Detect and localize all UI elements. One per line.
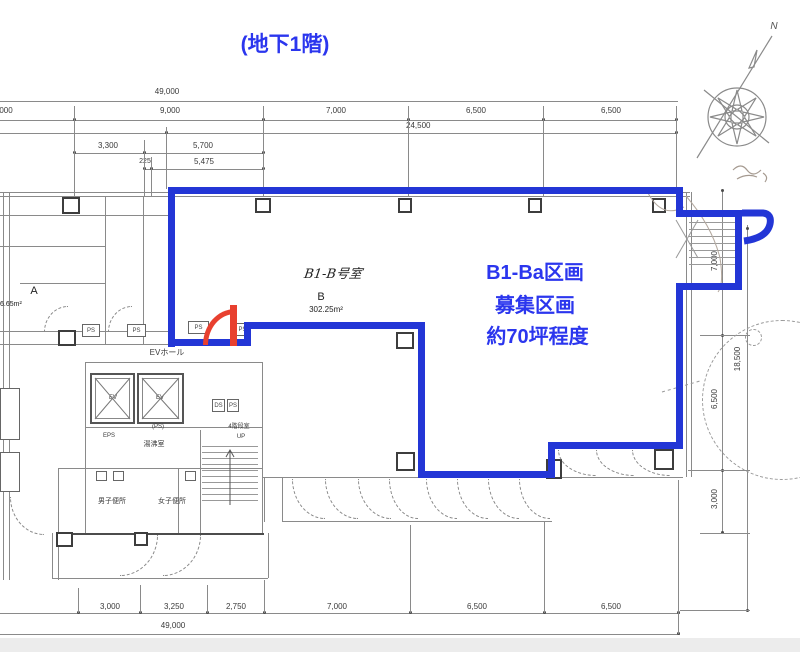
louver-arc bbox=[358, 479, 391, 519]
stair-tread bbox=[202, 470, 258, 471]
fixture bbox=[185, 471, 196, 481]
stair-tread bbox=[202, 446, 258, 447]
ps-paren-label: (PS) bbox=[146, 424, 170, 430]
callout-line1: B1-Ba区画 bbox=[455, 263, 615, 283]
callout-line2: 募集区画 bbox=[455, 296, 615, 316]
dim-label: 7,000 bbox=[711, 241, 719, 281]
ext-line bbox=[263, 106, 264, 196]
column bbox=[255, 198, 271, 213]
door-swing-arc bbox=[10, 497, 44, 535]
section-a-letter: A bbox=[26, 286, 42, 297]
ps-box: PS bbox=[82, 324, 100, 337]
dim-line bbox=[0, 613, 680, 614]
ext-line bbox=[207, 585, 208, 613]
stair-tread bbox=[202, 488, 258, 489]
wall bbox=[0, 196, 690, 197]
ext-line bbox=[166, 127, 167, 189]
dim-label: 7,000 bbox=[312, 107, 360, 115]
ev-hall-label: EVホール bbox=[138, 349, 196, 357]
stair-tread bbox=[202, 464, 258, 465]
boundary-segment bbox=[247, 322, 425, 329]
wall bbox=[105, 196, 106, 345]
dim-label: 49,000 bbox=[146, 622, 200, 630]
wall bbox=[143, 196, 144, 345]
dim-label: 24,500 bbox=[406, 122, 450, 130]
page-title: (地下1階) bbox=[210, 34, 360, 55]
dim-line bbox=[0, 101, 678, 102]
column bbox=[396, 452, 415, 471]
ps-box: PS bbox=[227, 399, 239, 412]
ps-box-label: PS bbox=[229, 403, 237, 409]
wall bbox=[9, 192, 10, 580]
wall bbox=[200, 430, 201, 533]
ext-line bbox=[74, 106, 75, 196]
louver-arc bbox=[325, 479, 358, 519]
column bbox=[56, 532, 73, 547]
fixture bbox=[96, 471, 107, 481]
stair-tread bbox=[689, 243, 735, 244]
ext-line bbox=[688, 470, 750, 471]
louver-arc bbox=[292, 479, 325, 519]
section-a-area: 6.65m² bbox=[0, 301, 40, 308]
wall bbox=[58, 468, 59, 580]
eps-label: EPS bbox=[96, 433, 122, 439]
ext-line bbox=[408, 106, 409, 196]
womens-wc-label: 女子便所 bbox=[146, 498, 198, 505]
ext-line bbox=[544, 522, 545, 613]
dim-label: 2,750 bbox=[212, 603, 260, 611]
boundary-segment bbox=[168, 187, 175, 347]
louver-arc bbox=[389, 479, 418, 519]
column bbox=[652, 198, 666, 213]
boundary-segment bbox=[551, 442, 683, 449]
fixture bbox=[113, 471, 124, 481]
ext-line bbox=[151, 157, 152, 196]
door-swing-arc bbox=[44, 306, 68, 332]
wall bbox=[58, 468, 262, 469]
ps-box-label: PS bbox=[87, 328, 95, 334]
column bbox=[62, 197, 80, 214]
ext-line bbox=[700, 533, 750, 534]
mens-wc-label: 男子便所 bbox=[86, 498, 138, 505]
elevator-label: EV bbox=[103, 395, 123, 401]
wall bbox=[85, 362, 262, 363]
kitchenette-label: 湯沸室 bbox=[133, 441, 175, 448]
door-swing-arc bbox=[120, 535, 158, 576]
wall bbox=[264, 477, 265, 522]
ds-box-label: DS bbox=[214, 403, 222, 409]
column bbox=[396, 332, 414, 349]
room-area: 302.25m² bbox=[300, 306, 352, 314]
boundary-segment bbox=[676, 210, 742, 217]
louver-arc bbox=[457, 479, 488, 519]
ext-line bbox=[78, 588, 79, 613]
compass-north-label: N bbox=[766, 22, 782, 32]
wall bbox=[268, 533, 269, 578]
wall bbox=[691, 192, 692, 477]
boundary-segment bbox=[421, 471, 555, 478]
door-swing-arc bbox=[163, 535, 201, 576]
stair-room-label: 4階段室 bbox=[216, 424, 262, 430]
column bbox=[58, 330, 76, 346]
stair-tread bbox=[689, 229, 735, 230]
louver-arc bbox=[558, 450, 596, 476]
wall bbox=[283, 521, 552, 522]
dim-label: 9,000 bbox=[146, 107, 194, 115]
dim-label: 3,250 bbox=[150, 603, 198, 611]
up-label: UP bbox=[232, 434, 250, 440]
callout-line3: 約70坪程度 bbox=[450, 327, 625, 347]
dim-label: 3,300 bbox=[84, 142, 132, 150]
wall bbox=[552, 477, 683, 478]
wall bbox=[282, 477, 283, 522]
wall bbox=[20, 283, 105, 284]
stair-tread bbox=[689, 257, 735, 258]
ext-line bbox=[410, 525, 411, 613]
wall bbox=[85, 362, 86, 533]
ext-line bbox=[264, 580, 265, 613]
dim-label: 6,500 bbox=[587, 603, 635, 611]
column bbox=[398, 198, 412, 213]
dim-label: 5,475 bbox=[180, 158, 228, 166]
dim-label: 6,500 bbox=[587, 107, 635, 115]
wall bbox=[52, 533, 53, 578]
stair-tread bbox=[202, 476, 258, 477]
ext-line bbox=[543, 106, 544, 196]
boundary-segment bbox=[676, 283, 683, 449]
louver-arc bbox=[632, 450, 670, 476]
dim-line bbox=[0, 133, 676, 134]
louver-arc bbox=[488, 479, 519, 519]
wall bbox=[262, 362, 263, 533]
dim-label: 6,500 bbox=[452, 107, 500, 115]
elevator-label: EV bbox=[150, 395, 170, 401]
louver-arc bbox=[519, 479, 550, 519]
dim-label: 000 bbox=[0, 107, 18, 115]
boundary-segment bbox=[168, 187, 683, 194]
column bbox=[528, 198, 542, 213]
stair-tread bbox=[202, 452, 258, 453]
dim-label: 49,000 bbox=[140, 88, 194, 96]
ext-line bbox=[144, 140, 145, 196]
dim-line bbox=[0, 120, 676, 121]
dim-line bbox=[0, 634, 680, 635]
stair-tread bbox=[202, 482, 258, 483]
dim-line bbox=[144, 169, 263, 170]
small-circle bbox=[745, 329, 762, 346]
wall bbox=[3, 192, 4, 580]
stair-tread bbox=[689, 236, 735, 237]
boundary-segment bbox=[735, 210, 742, 289]
stair-tread bbox=[202, 500, 258, 501]
wall bbox=[56, 533, 264, 535]
fixture bbox=[0, 452, 20, 492]
wall bbox=[686, 192, 687, 477]
ext-line bbox=[678, 480, 679, 634]
dim-tick bbox=[746, 227, 749, 230]
louver-arc bbox=[596, 450, 634, 476]
stair-tread bbox=[689, 264, 735, 265]
dim-label: 7,000 bbox=[313, 603, 361, 611]
stair-tread bbox=[202, 458, 258, 459]
ds-box: DS bbox=[212, 399, 225, 412]
door-swing-arc bbox=[108, 306, 132, 332]
wall bbox=[262, 477, 420, 478]
fixture bbox=[0, 388, 20, 440]
louver-arc bbox=[426, 479, 457, 519]
ps-box-label: PS bbox=[132, 328, 140, 334]
scan-strip bbox=[0, 638, 800, 652]
room-letter: B bbox=[313, 292, 329, 303]
wall bbox=[52, 578, 268, 579]
room-name-handwritten: B1-B号室 bbox=[287, 268, 379, 281]
ext-line bbox=[676, 106, 677, 196]
wall bbox=[0, 215, 170, 216]
boundary-segment bbox=[418, 322, 425, 478]
ext-line bbox=[680, 610, 750, 611]
dim-label: 3,000 bbox=[86, 603, 134, 611]
dim-tick bbox=[721, 189, 724, 192]
stair-tread bbox=[689, 222, 735, 223]
floorplan-canvas: 49,000 000 9,000 7,000 6,500 6,500 24,50… bbox=[0, 0, 800, 652]
stair-tread bbox=[202, 494, 258, 495]
dim-line bbox=[74, 153, 263, 154]
ext-line bbox=[140, 585, 141, 613]
entrance-door-leaf bbox=[230, 305, 237, 346]
dim-label: 5,700 bbox=[179, 142, 227, 150]
dim-label: 3,000 bbox=[711, 479, 719, 519]
ps-box-label: PS bbox=[194, 325, 202, 331]
dim-label: 6,500 bbox=[453, 603, 501, 611]
dim-label: 225 bbox=[134, 158, 156, 165]
stair-tread bbox=[689, 250, 735, 251]
wall bbox=[0, 246, 105, 247]
boundary-segment bbox=[676, 283, 742, 290]
